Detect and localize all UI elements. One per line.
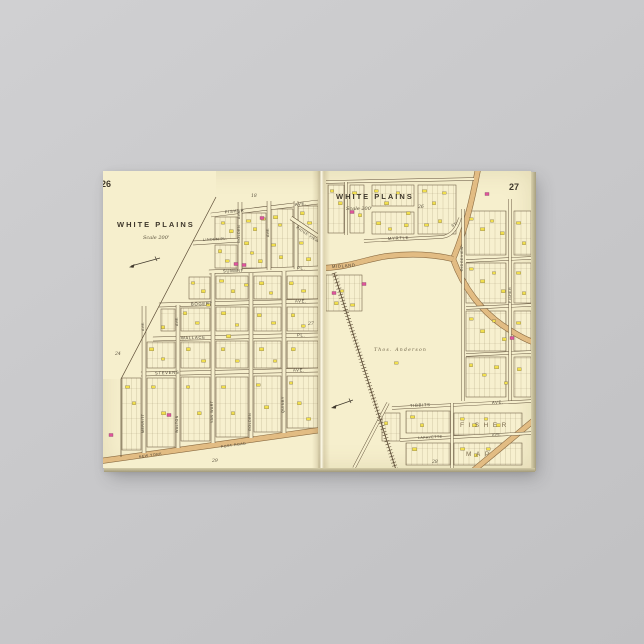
scale-label-right: Scale 200': [346, 206, 372, 212]
scale-label-left: Scale 200': [143, 235, 169, 241]
sheet-number-right: 27: [509, 182, 519, 192]
street-label-lafayette-ave: AVE.: [492, 432, 502, 437]
canvas-wrap-edge-bottom: [104, 468, 535, 472]
street-label-ridgeview: RIDGEVIEW: [460, 246, 464, 271]
street-label-golden-upper-ave: AVE.: [237, 209, 241, 219]
subdivision-label-fisher: FISHER: [460, 422, 511, 429]
adjacent-sheet-top: 18: [251, 193, 257, 199]
north-arrow-icon: [331, 399, 353, 409]
page-title-right: WHITE PLAINS: [336, 192, 414, 201]
street-label-golden-upper: GOLDEN: [237, 225, 241, 243]
street-label-fisher-vertical: FISHER: [508, 287, 512, 303]
street-label-ave-upper: AVE.: [266, 227, 270, 237]
adjacent-sheet-bottom: 29: [211, 458, 218, 464]
street-label-summit: SUMMIT: [223, 268, 244, 274]
page-title-left: WHITE PLAINS: [117, 220, 195, 229]
book-gutter: [312, 171, 330, 468]
product-photo-background: 26 WHITE PLAINS Scale 200' 18 24 27 29 F…: [0, 0, 644, 644]
adjacent-sheet-bottom: 28: [431, 459, 438, 465]
adjacent-sheet-left: 24: [114, 351, 121, 357]
street-label-walton: WALTON: [175, 415, 179, 433]
left-map-page: 26 WHITE PLAINS Scale 200' 18 24 27 29 F…: [103, 171, 318, 468]
street-label-golden-lower: GOLDEN: [248, 413, 252, 431]
street-label-walton-ave: AVE.: [175, 316, 179, 326]
canvas-wrap-edge-right: [531, 172, 536, 471]
street-label-stevens-ave: AVE.: [293, 368, 305, 373]
street-label-merritt-ave: AVE.: [141, 321, 145, 331]
street-label-summit-pl: PL.: [297, 266, 305, 271]
estate-label-thos-anderson: Thos. Anderson: [374, 347, 427, 353]
street-label-merritt: MERRITT: [141, 413, 145, 433]
street-label-stevens: STEVENS: [155, 370, 180, 376]
street-label-bogert-ave: AVE.: [295, 299, 307, 304]
adjacent-sheet-top: 26: [417, 204, 424, 210]
subdivision-label-map: MAP: [466, 451, 494, 458]
street-label-tibbits-ave: AVE.: [492, 399, 504, 405]
right-map-page: WHITE PLAINS Scale 200' 27 26 28 MYRTLE …: [326, 171, 531, 468]
street-label-van-wart: VAN WART: [210, 400, 214, 423]
street-label-midland: MIDLAND: [332, 262, 356, 269]
street-label-wallace-pl: PL.: [297, 333, 305, 338]
canvas-print[interactable]: 26 WHITE PLAINS Scale 200' 18 24 27 29 F…: [103, 171, 531, 468]
street-label-bogert: BOGERT: [191, 301, 213, 307]
sheet-number-left: 26: [103, 179, 111, 189]
street-label-wallace: WALLACE: [181, 335, 206, 341]
street-label-quinby: QUINBY: [281, 396, 285, 413]
